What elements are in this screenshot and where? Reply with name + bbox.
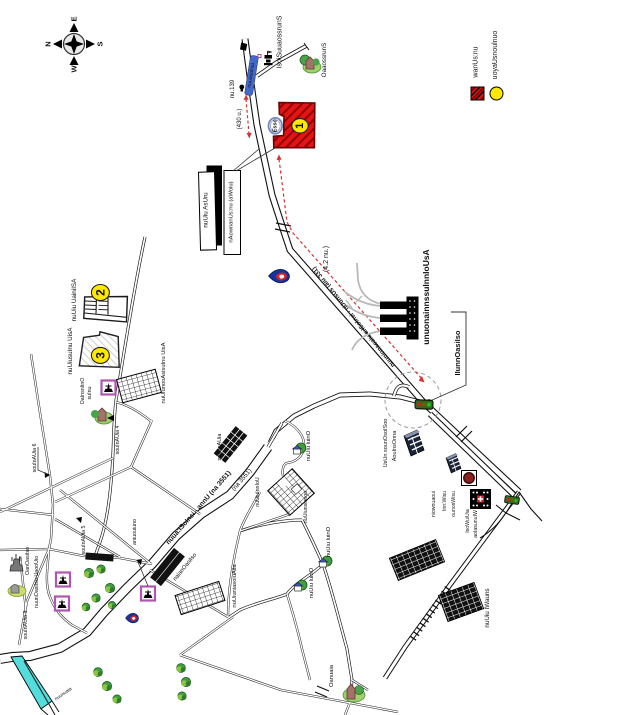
svg-text:uoyaUsnoulnuo: uoyaUsnoulnuo (492, 31, 499, 80)
svg-text:S: S (96, 41, 105, 46)
svg-text:nu.139: nu.139 (230, 79, 236, 98)
svg-text:suInu: suInu (87, 386, 93, 399)
svg-text:N: N (44, 41, 53, 46)
svg-text:wanUs:nu: wanUs:nu (473, 46, 480, 78)
svg-text:nuUiu IWauns: nuUiu IWauns (484, 588, 491, 627)
svg-text:nAownanUs:nu (aWolu): nAownanUs:nu (aWolu) (229, 181, 235, 242)
svg-text:E: E (70, 16, 79, 21)
svg-text:IsoWuiUia: IsoWuiUia (465, 509, 471, 533)
svg-text:nuunOasiIso-UaooUio: nuunOasiIso-UaooUio (34, 556, 40, 608)
svg-text:OanOasiIso: OanOasiIso (25, 547, 31, 575)
svg-text:nuUiu luinO: nuUiu luinO (306, 430, 312, 461)
svg-text:1: 1 (294, 123, 306, 129)
svg-text:3: 3 (94, 352, 108, 359)
svg-text:Inn:Wisu: Inn:Wisu (442, 491, 448, 511)
svg-text:nuUiusuInu UisA: nuUiusuInu UisA (67, 327, 74, 375)
svg-text:(430 u.): (430 u.) (237, 109, 243, 130)
svg-text:nuUiu luinO: nuUiu luinO (309, 567, 315, 598)
svg-text:UsUn sounOsoISoo: UsUn sounOsoISoo (383, 419, 389, 468)
svg-text:nuUiuniasoiuAila: nuUiuniasoiuAila (232, 564, 238, 608)
svg-text:2: 2 (94, 289, 108, 296)
svg-text:IIunnOasiIso: IIunnOasiIso (453, 330, 462, 375)
svg-text:W: W (70, 65, 79, 73)
svg-text:Esso: Esso (272, 119, 278, 133)
svg-text:nuUiuInnIoU: nuUiuInnIoU (255, 477, 261, 507)
svg-text:souInAUia 5: souInAUia 5 (81, 526, 87, 555)
svg-text:nuUiunsiunoo: nuUiunsiunoo (303, 491, 309, 523)
svg-text:Oanuaia: Oanuaia (329, 664, 335, 687)
svg-text:(4.2 nu.): (4.2 nu.) (323, 246, 330, 272)
svg-text:OaInsnIinO: OaInsnIinO (80, 378, 86, 405)
svg-text:nuUiu UainiISA: nuUiu UainiISA (71, 278, 78, 322)
svg-text:AouInsOnna: AouInsOnna (392, 430, 398, 462)
svg-text:souInAUia 3: souInAUia 3 (23, 611, 29, 640)
svg-text:nuUiu luinO: nuUiu luinO (326, 526, 332, 557)
svg-text:nuUiu AsUru: nuUiu AsUru (203, 192, 210, 228)
svg-text:aniuouiuno: aniuouiuno (132, 519, 138, 545)
svg-text:souInAUia 6: souInAUia 6 (32, 444, 38, 473)
svg-text:naiaInAUia: naiaInAUia (217, 433, 223, 461)
svg-text:IsoiSuuaossrunS: IsoiSuuaossrunS (277, 15, 284, 68)
svg-text:ounosWisu: ounosWisu (451, 491, 457, 517)
svg-text:nuUiunooAsisuInu UisA: nuUiunooAsisuInu UisA (161, 342, 167, 403)
svg-text:OaaossrunS: OaaossrunS (321, 43, 328, 77)
svg-text:aoIasunuIW: aoIasunuIW (473, 510, 479, 538)
svg-text:niownuaoui: niownuaoui (431, 491, 437, 517)
svg-text:souInAUia 4: souInAUia 4 (115, 426, 121, 455)
svg-text:unuonainnssuInnIoUsA: unuonainnssuInnIoUsA (421, 249, 431, 344)
